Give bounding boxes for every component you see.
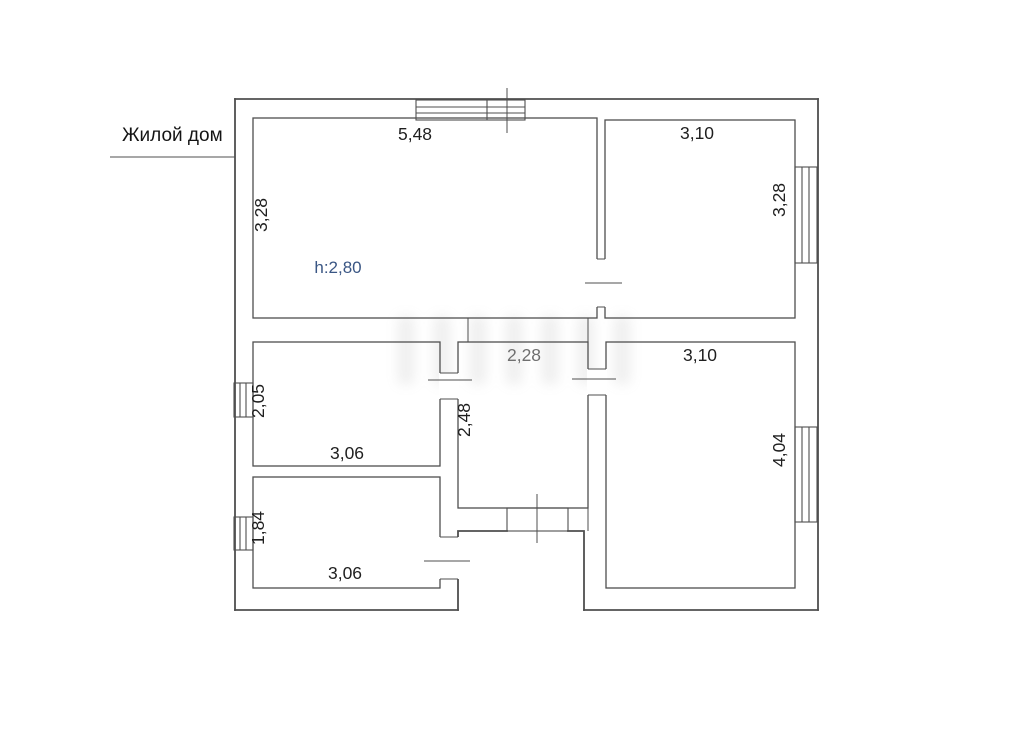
door-middle-left-gap bbox=[439, 373, 459, 399]
dim-middle-left-height: 2,05 bbox=[248, 384, 268, 418]
dim-top-left-height: 3,28 bbox=[251, 198, 271, 232]
floor-plan-drawing: Жилой дом 5,48 3,28 h:2,80 3,10 3,28 3,0… bbox=[0, 0, 1024, 733]
dim-top-right-height: 3,28 bbox=[769, 183, 789, 217]
ceiling-height-label: h:2,80 bbox=[314, 258, 361, 277]
dim-bottom-left-width: 3,06 bbox=[328, 563, 362, 583]
dim-right-width: 3,10 bbox=[683, 345, 717, 365]
dim-hallway-width: 2,28 bbox=[507, 345, 541, 365]
porch-wall-left bbox=[458, 531, 507, 610]
window-right-bottom-icon bbox=[795, 427, 817, 522]
hallway-outline bbox=[458, 342, 588, 508]
door-bottom-left-gap bbox=[439, 537, 459, 579]
dim-top-right-width: 3,10 bbox=[680, 123, 714, 143]
room-right-outline bbox=[606, 342, 795, 588]
room-top-left-outline bbox=[253, 118, 597, 318]
dim-right-height: 4,04 bbox=[769, 433, 789, 467]
room-top-right-outline bbox=[605, 120, 795, 318]
dim-hallway-depth: 2,48 bbox=[454, 403, 474, 437]
dim-top-left-width: 5,48 bbox=[398, 124, 432, 144]
windows bbox=[234, 88, 817, 550]
dimension-labels: 5,48 3,28 h:2,80 3,10 3,28 3,06 2,05 3,0… bbox=[248, 123, 789, 583]
window-top-icon bbox=[416, 88, 525, 133]
window-right-top-icon bbox=[795, 167, 817, 263]
porch-wall-right bbox=[568, 531, 584, 610]
dim-middle-left-width: 3,06 bbox=[330, 443, 364, 463]
dim-bottom-left-height: 1,84 bbox=[248, 511, 268, 545]
floor-plan-page: Жилой дом 5,48 3,28 h:2,80 3,10 3,28 3,0… bbox=[0, 0, 1024, 733]
plan-title: Жилой дом bbox=[122, 125, 223, 146]
door-right-room-gap bbox=[587, 369, 607, 395]
